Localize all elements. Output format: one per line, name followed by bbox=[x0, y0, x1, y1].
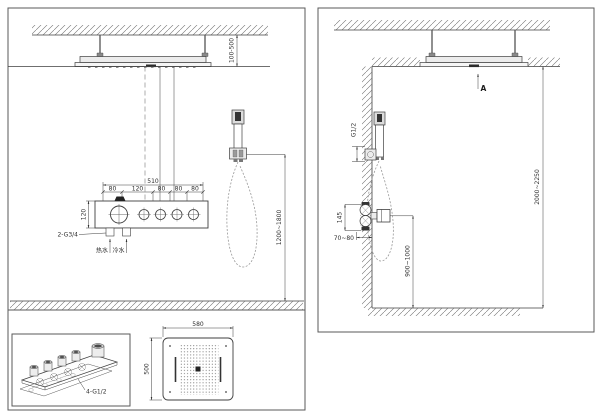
floor-hatch bbox=[10, 301, 303, 310]
hose-connectors bbox=[234, 159, 244, 162]
inlet-leader bbox=[79, 233, 106, 235]
outlets-spec-label: 4-G1/2 bbox=[86, 389, 107, 396]
segment-label: 80 bbox=[158, 185, 166, 192]
dim-ceiling-gap-label: 100-500 bbox=[229, 38, 236, 63]
dim-120-label: 120 bbox=[81, 209, 88, 221]
valve-cap-bottom bbox=[362, 227, 370, 231]
cold-water-label: 冷水 bbox=[112, 247, 124, 255]
dim-depth-label: 70~80 bbox=[334, 235, 354, 242]
front-view: 100-500 510 80 120 80 80 80 120 2 bbox=[8, 25, 304, 310]
shower-head-plan-view: 580 500 bbox=[144, 321, 234, 400]
handshower-face bbox=[235, 112, 241, 121]
isometric-valve-detail: 4-G1/2 bbox=[20, 344, 117, 396]
shower-head-plate bbox=[75, 63, 211, 67]
valve-stem bbox=[371, 213, 377, 220]
shower-head-body bbox=[426, 57, 522, 63]
bottom-strip-border bbox=[8, 310, 305, 410]
section-marker-label: A bbox=[481, 84, 487, 93]
hose-loop bbox=[227, 162, 257, 267]
dim-510-label: 510 bbox=[147, 178, 159, 185]
handshower-thread-label: G1/2 bbox=[351, 123, 358, 137]
valve-knob-side bbox=[377, 210, 390, 223]
dim-145-label: 145 bbox=[337, 212, 344, 224]
drawing-canvas: 100-500 510 80 120 80 80 80 120 2 bbox=[0, 0, 600, 418]
segment-label: 120 bbox=[132, 185, 144, 192]
handshower-bracket bbox=[230, 148, 247, 159]
hose-connectors bbox=[376, 157, 384, 160]
outlets-leader bbox=[78, 379, 85, 390]
handshower-handle bbox=[376, 125, 384, 157]
installation-drawing-sheet: 100-500 510 80 120 80 80 80 120 2 bbox=[0, 0, 600, 418]
ceiling-hatch bbox=[32, 25, 268, 35]
wall-elbow bbox=[365, 149, 376, 160]
segment-label: 80 bbox=[109, 185, 117, 192]
false-ceiling-hatch-left bbox=[372, 58, 420, 67]
segment-label: 80 bbox=[191, 185, 199, 192]
corner-screw bbox=[169, 345, 171, 347]
inlet-stub-hot bbox=[106, 228, 114, 236]
rod-feet bbox=[429, 53, 518, 57]
hanging-rods bbox=[100, 35, 205, 53]
head-connector-nub bbox=[469, 65, 479, 68]
valve-top-cap bbox=[115, 197, 126, 202]
dim-mount-label: 1200~1800 bbox=[276, 210, 283, 246]
inlet-spec-label: 2-G3/4 bbox=[57, 232, 78, 239]
hanging-rods bbox=[432, 30, 515, 53]
ceiling-hatch bbox=[334, 20, 550, 30]
hot-water-label: 热水 bbox=[96, 247, 108, 255]
dim-install-label: 2000~2250 bbox=[534, 169, 541, 205]
segment-label: 80 bbox=[175, 185, 183, 192]
left-panel-border bbox=[8, 8, 305, 310]
corner-screw bbox=[225, 345, 227, 347]
corner-screw bbox=[169, 391, 171, 393]
shower-head-body bbox=[80, 57, 206, 63]
corner-screw bbox=[225, 391, 227, 393]
inlet-stub-cold bbox=[123, 228, 131, 236]
side-view: A 2000~2250 G1/2 145 70~80 bbox=[334, 20, 560, 316]
supply-pipes bbox=[160, 67, 174, 202]
rod-feet bbox=[97, 53, 208, 57]
dim-580-label: 580 bbox=[192, 321, 204, 328]
dim-500-label: 500 bbox=[144, 363, 151, 375]
dim-seg-ext bbox=[122, 192, 187, 201]
dim-900-label: 900~1000 bbox=[405, 245, 412, 277]
center-outlet bbox=[196, 367, 201, 372]
dim-145-ext bbox=[345, 205, 361, 231]
false-ceiling-hatch-right bbox=[528, 58, 560, 67]
floor-hatch bbox=[368, 308, 520, 316]
handshower-face bbox=[377, 114, 382, 122]
wall-hatch bbox=[362, 67, 372, 309]
